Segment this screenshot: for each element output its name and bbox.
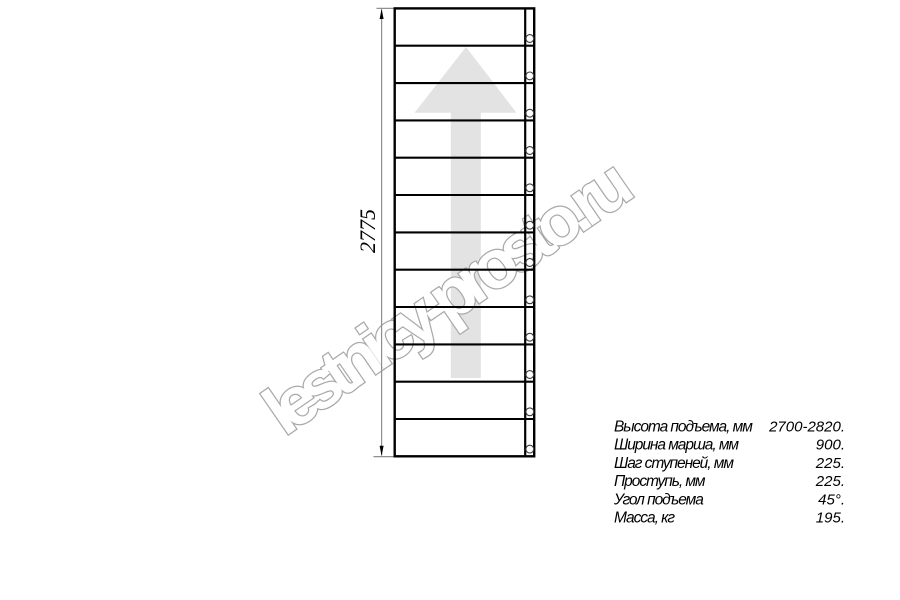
- svg-text:195.: 195.: [816, 510, 845, 527]
- svg-text:Проступь, мм: Проступь, мм: [614, 473, 706, 490]
- svg-text:Ширина марша, мм: Ширина марша, мм: [614, 437, 739, 454]
- svg-text:Угол подъема: Угол подъема: [613, 491, 704, 508]
- svg-text:45°.: 45°.: [818, 491, 845, 508]
- svg-text:225.: 225.: [815, 455, 845, 472]
- svg-text:2775: 2775: [355, 209, 380, 253]
- svg-text:900.: 900.: [816, 437, 845, 454]
- svg-text:Высота подъема, мм: Высота подъема, мм: [614, 419, 753, 436]
- svg-text:225.: 225.: [815, 473, 845, 490]
- svg-text:lestnicy-prosto.ru: lestnicy-prosto.ru: [250, 146, 643, 449]
- svg-text:Шаг ступеней, мм: Шаг ступеней, мм: [614, 455, 734, 472]
- svg-text:2700-2820.: 2700-2820.: [768, 419, 845, 436]
- svg-text:Масса, кг: Масса, кг: [614, 510, 675, 527]
